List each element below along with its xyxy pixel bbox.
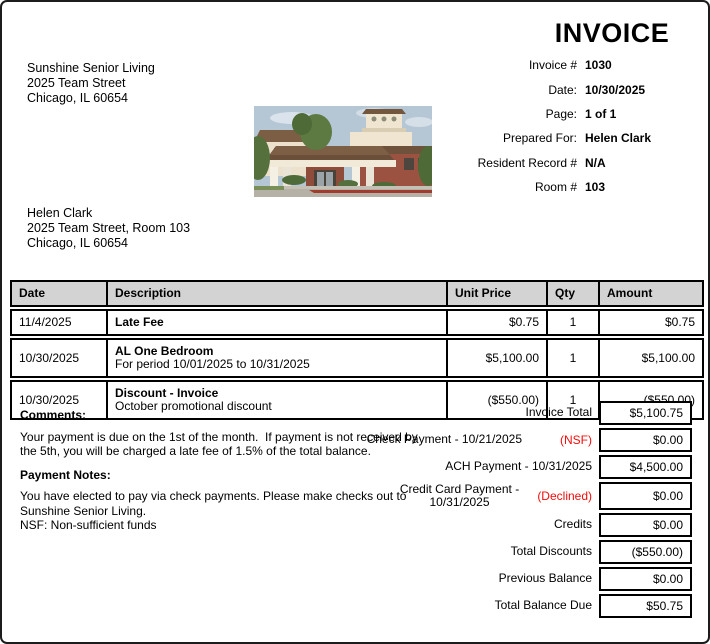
totals-amount: $50.75 [599, 594, 692, 618]
totals-row-check-payment: Check Payment - 10/21/2025 (NSF) $0.00 [312, 428, 692, 452]
table-row: 11/4/2025 Late Fee $0.75 1 $0.75 [10, 309, 704, 336]
totals-amount: $0.00 [599, 567, 692, 591]
company-name: Sunshine Senior Living [27, 61, 155, 76]
header-unit-price: Unit Price [446, 282, 546, 305]
item-description: AL One Bedroom For period 10/01/2025 to … [106, 340, 446, 376]
payment-status-declined: (Declined) [522, 489, 592, 503]
header-description: Description [106, 282, 446, 305]
totals-label: Total Balance Due [312, 599, 592, 613]
invoice-page: INVOICE Sunshine Senior Living 2025 Team… [0, 0, 710, 644]
payment-status-nsf: (NSF) [522, 433, 592, 447]
totals-amount: $4,500.00 [599, 455, 692, 479]
header-amount: Amount [598, 282, 702, 305]
item-unit-price: $0.75 [446, 311, 546, 334]
totals-amount: $0.00 [599, 513, 692, 537]
meta-row-invoice-number: Invoice # 1030 [357, 53, 651, 77]
meta-row-date: Date: 10/30/2025 [357, 77, 651, 101]
totals-section: Invoice Total $5,100.75 Check Payment - … [312, 401, 692, 621]
meta-row-page: Page: 1 of 1 [357, 102, 651, 126]
invoice-meta: Invoice # 1030 Date: 10/30/2025 Page: 1 … [357, 53, 651, 199]
table-header-row: Date Description Unit Price Qty Amount [10, 280, 704, 307]
item-date: 11/4/2025 [12, 311, 106, 334]
totals-label: Previous Balance [312, 572, 592, 586]
company-street: 2025 Team Street [27, 76, 155, 91]
item-date: 10/30/2025 [12, 340, 106, 376]
recipient-street: 2025 Team Street, Room 103 [27, 221, 190, 236]
totals-label: Total Discounts [312, 545, 592, 559]
recipient-address: Helen Clark 2025 Team Street, Room 103 C… [27, 206, 190, 251]
totals-label: Invoice Total [312, 406, 592, 420]
meta-row-room: Room # 103 [357, 175, 651, 199]
totals-row-total-balance-due: Total Balance Due $50.75 [312, 594, 692, 618]
totals-label: Credit Card Payment - 10/31/2025 [397, 483, 522, 510]
totals-amount: $0.00 [599, 482, 692, 510]
company-address: Sunshine Senior Living 2025 Team Street … [27, 61, 155, 106]
meta-row-resident-record: Resident Record # N/A [357, 151, 651, 175]
totals-amount: $5,100.75 [599, 401, 692, 425]
date-label: Date: [357, 83, 577, 97]
totals-row-credit-card-payment: Credit Card Payment - 10/31/2025 (Declin… [312, 482, 692, 510]
totals-row-previous-balance: Previous Balance $0.00 [312, 567, 692, 591]
resident-record-value: N/A [585, 156, 606, 170]
header-qty: Qty [546, 282, 598, 305]
item-amount: $5,100.00 [598, 340, 702, 376]
totals-label: ACH Payment - 10/31/2025 [312, 460, 592, 474]
room-value: 103 [585, 180, 605, 194]
item-unit-price: $5,100.00 [446, 340, 546, 376]
totals-row-credits: Credits $0.00 [312, 513, 692, 537]
prepared-for-label: Prepared For: [357, 131, 577, 145]
totals-row-total-discounts: Total Discounts ($550.00) [312, 540, 692, 564]
item-title: Late Fee [115, 316, 439, 329]
totals-label: Check Payment - 10/21/2025 [312, 433, 522, 447]
table-row: 10/30/2025 AL One Bedroom For period 10/… [10, 338, 704, 378]
totals-label: Credits [312, 518, 592, 532]
page-value: 1 of 1 [585, 107, 616, 121]
recipient-name: Helen Clark [27, 206, 190, 221]
item-description: Late Fee [106, 311, 446, 334]
resident-record-label: Resident Record # [357, 156, 577, 170]
date-value: 10/30/2025 [585, 83, 645, 97]
totals-amount: $0.00 [599, 428, 692, 452]
totals-row-invoice-total: Invoice Total $5,100.75 [312, 401, 692, 425]
prepared-for-value: Helen Clark [585, 131, 651, 145]
item-qty: 1 [546, 340, 598, 376]
header-date: Date [12, 282, 106, 305]
item-amount: $0.75 [598, 311, 702, 334]
totals-row-ach-payment: ACH Payment - 10/31/2025 $4,500.00 [312, 455, 692, 479]
page-title: INVOICE [522, 18, 702, 49]
item-detail: For period 10/01/2025 to 10/31/2025 [115, 358, 439, 371]
recipient-city: Chicago, IL 60654 [27, 236, 190, 251]
company-city: Chicago, IL 60654 [27, 91, 155, 106]
meta-row-prepared-for: Prepared For: Helen Clark [357, 126, 651, 150]
item-qty: 1 [546, 311, 598, 334]
invoice-number-value: 1030 [585, 58, 612, 72]
room-label: Room # [357, 180, 577, 194]
page-label: Page: [357, 107, 577, 121]
invoice-number-label: Invoice # [357, 58, 577, 72]
totals-amount: ($550.00) [599, 540, 692, 564]
